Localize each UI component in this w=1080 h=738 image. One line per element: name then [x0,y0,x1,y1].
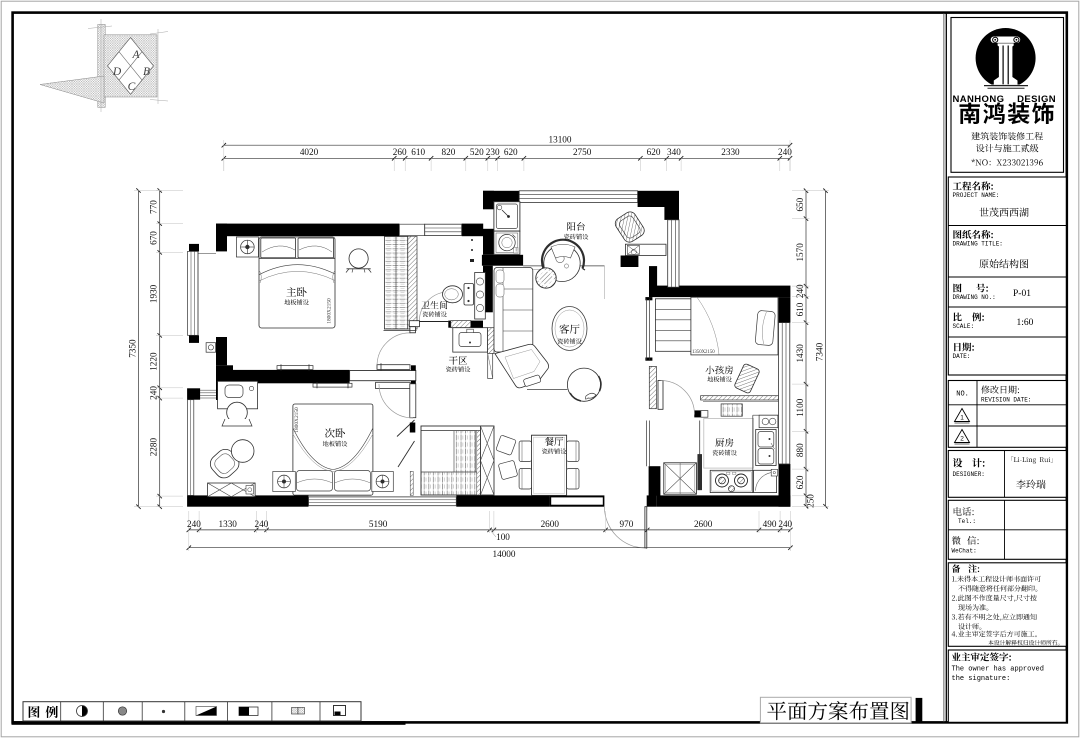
svg-text:2330: 2330 [721,147,740,157]
svg-text:1330: 1330 [219,519,238,529]
svg-text:230: 230 [486,147,500,157]
svg-text:970: 970 [620,519,634,529]
svg-text:670: 670 [149,231,159,245]
svg-text:NO.: NO. [956,391,969,399]
svg-text:2750: 2750 [573,147,592,157]
svg-text:1930: 1930 [149,284,159,303]
svg-text:490: 490 [763,519,777,529]
svg-text:B: B [143,66,150,78]
svg-text:240: 240 [187,519,201,529]
svg-text:1800X2150: 1800X2150 [327,298,333,324]
svg-text:1570: 1570 [795,243,805,262]
svg-text:PROJECT NAME:: PROJECT NAME: [953,192,1000,199]
svg-text:520: 520 [470,147,484,157]
svg-text:5190: 5190 [369,519,388,529]
svg-text:880: 880 [795,443,805,457]
svg-text:2600: 2600 [694,519,713,529]
svg-text:1100: 1100 [795,398,805,416]
svg-text:DRAWING NO.:: DRAWING NO.: [953,294,996,301]
svg-text:340: 340 [667,147,681,157]
svg-text:13100: 13100 [549,134,572,144]
svg-text:DATE:: DATE: [953,353,971,360]
svg-text:1: 1 [960,415,964,422]
svg-text:770: 770 [149,200,159,214]
svg-text:7350: 7350 [127,339,137,358]
svg-text:1430: 1430 [795,344,805,363]
svg-text:1800X2150: 1800X2150 [294,407,300,433]
svg-text:REVISION DATE:: REVISION DATE: [981,397,1031,404]
svg-text:C: C [128,81,136,93]
svg-text:2: 2 [960,436,964,443]
svg-text:The owner has approved: The owner has approved [952,666,1044,674]
svg-text:620: 620 [504,147,518,157]
svg-text:Tel.:: Tel.: [958,518,976,525]
svg-text:DESIGNER:: DESIGNER: [953,471,985,478]
svg-text:P-01: P-01 [1013,289,1031,299]
svg-text:4020: 4020 [300,147,319,157]
svg-text:250: 250 [806,494,816,508]
svg-text:650: 650 [795,197,805,211]
svg-text:14000: 14000 [493,549,516,559]
svg-text:620: 620 [795,475,805,489]
svg-text:the signature:: the signature: [952,675,1011,683]
svg-text:610: 610 [411,147,425,157]
svg-text:1:60: 1:60 [1017,318,1034,328]
svg-text:240: 240 [255,519,269,529]
svg-text:DRAWING TITLE:: DRAWING TITLE: [953,241,1003,248]
svg-text:D: D [112,66,122,78]
svg-text:7340: 7340 [814,342,824,361]
svg-text:610: 610 [795,302,805,316]
svg-text:240: 240 [149,386,159,400]
svg-text:1220: 1220 [149,352,159,371]
svg-text:240: 240 [795,284,805,298]
svg-text:240: 240 [778,519,792,529]
svg-text:WeChat:: WeChat: [952,548,977,555]
svg-text:620: 620 [647,147,661,157]
svg-text:SCALE:: SCALE: [953,323,975,330]
svg-text:NANHONG: NANHONG [953,94,1005,105]
svg-text:100: 100 [496,532,510,542]
svg-text:1350X2150: 1350X2150 [692,350,715,355]
svg-text:2280: 2280 [149,438,159,457]
svg-text:A: A [131,49,140,61]
svg-text:260: 260 [393,147,407,157]
svg-text:820: 820 [442,147,456,157]
svg-text:2600: 2600 [541,519,560,529]
